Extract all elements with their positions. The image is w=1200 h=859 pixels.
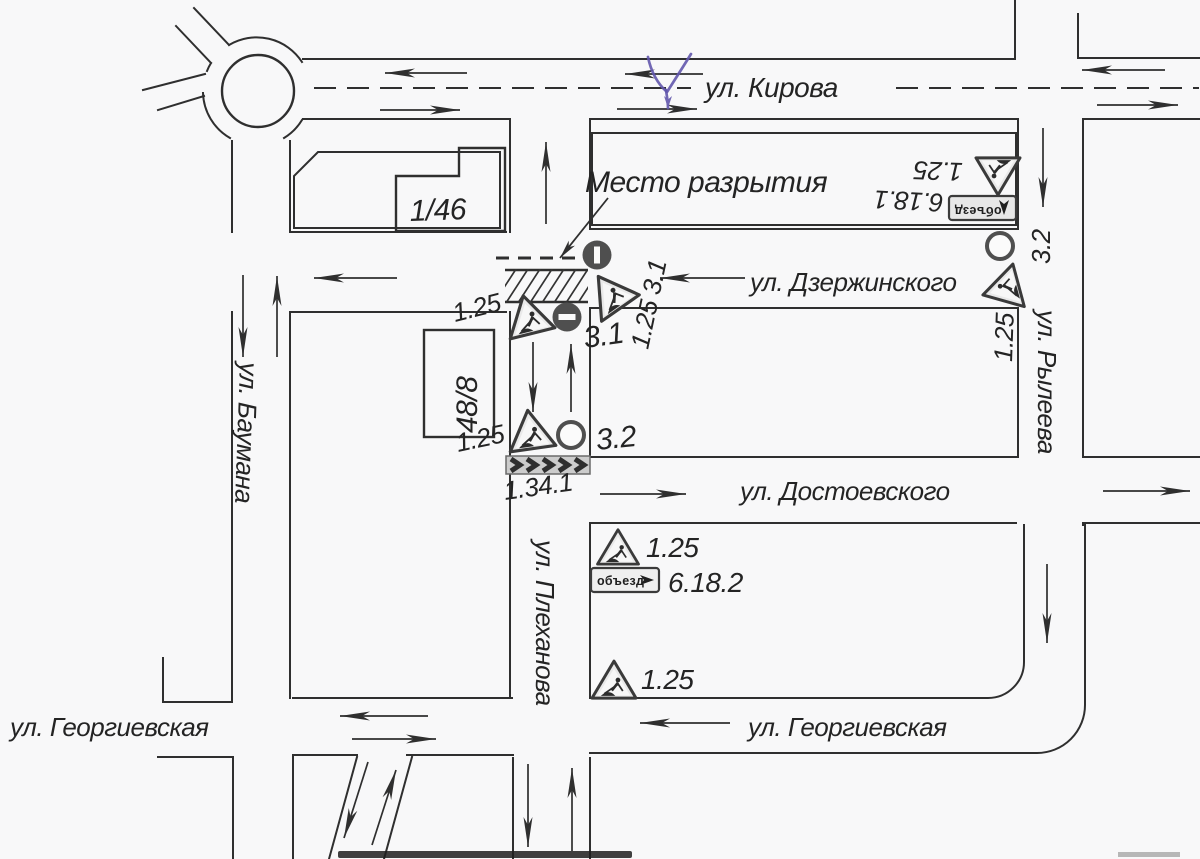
roadworks-sign-icon [505,407,556,452]
roadworks-sign-icon [976,158,1020,195]
sign-label-125: 1.25 [913,155,964,187]
street-label-baumana: ул. Баумана [229,360,264,504]
detour-sign-text: объезд [597,574,644,588]
no-vehicles-sign-icon [987,233,1013,259]
no-entry-sign-icon [583,241,612,270]
pen-checkmark-annotation [648,54,691,108]
sign-label-125: 1.25 [449,287,504,328]
roadworks-sign-icon [592,661,636,698]
sign-label-125: 1.25 [646,532,699,563]
roadworks-sign-icon [579,263,639,321]
sign-label-125: 1.25 [641,664,694,695]
no-vehicles-sign-icon [558,422,584,448]
sign-label-125: 1.25 [988,312,1020,363]
sign-label-125-31: 1.25 3.1 [625,257,673,351]
building-1-46-label: 1/46 [409,193,467,228]
sign-label-6182: 6.18.2 [668,567,744,598]
scan-artifacts [338,851,1180,858]
detour-sign-text: объезд [954,204,1001,218]
street-label-plekhanova: ул. Плеханова [530,538,560,706]
roadworks-sign-icon [598,530,639,564]
excavation-label: Место разрытия [585,166,828,199]
street-label-kirova: ул. Кирова [703,72,838,103]
street-label-georgievskaya-west: ул. Георгиевская [8,712,209,742]
scanned-traffic-scheme: 1/46 48/8 Место разрытия [0,0,1200,859]
street-label-georgievskaya-east: ул. Георгиевская [746,712,947,742]
street-labels: ул. Кирова ул. Дзержинского ул. Достоевс… [8,72,1062,742]
roundabout [143,8,302,138]
building-1-46: 1/46 [396,148,505,231]
no-entry-sign-icon [553,303,582,332]
street-label-dzerzhinskogo: ул. Дзержинского [748,267,957,297]
detour-sign-6182-icon: объезд [591,568,659,592]
sign-label-32: 3.2 [1026,228,1056,264]
sign-label-32: 3.2 [594,420,638,457]
building-48-8: 48/8 [424,330,494,437]
detour-sign-6181-icon: объезд [949,196,1016,220]
excavation-hatch [492,266,602,306]
street-label-dostoevskogo: ул. Достоевского [738,476,950,506]
sign-label-6181: 6.18.1 [874,184,945,218]
street-label-ryleeva: ул. Рылеева [1032,308,1062,454]
sign-label-31: 3.1 [581,317,625,355]
